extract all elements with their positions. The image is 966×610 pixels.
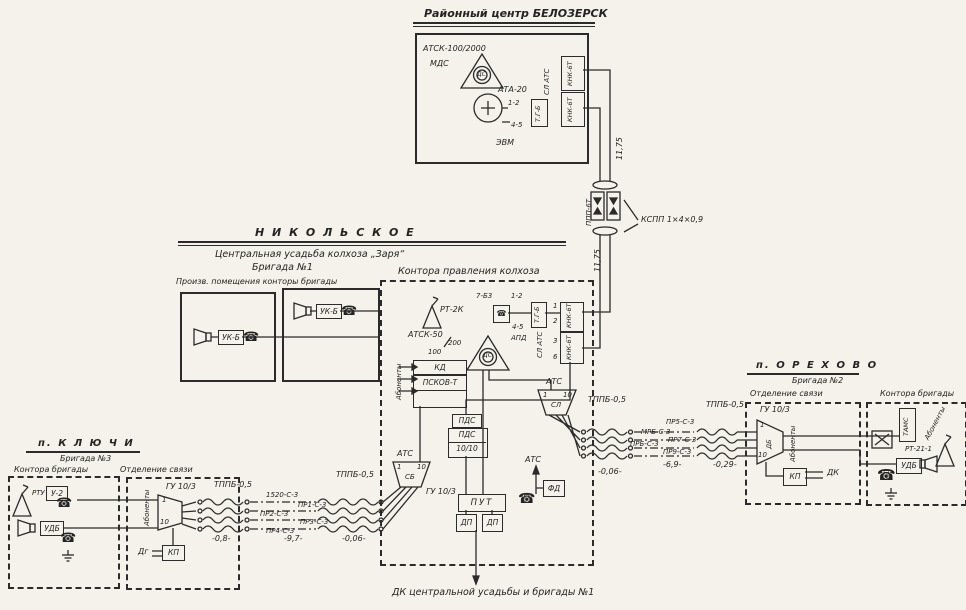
fd-box: ФД bbox=[543, 480, 565, 497]
trap-tick: 1 bbox=[543, 392, 547, 399]
nup-label: ППП-6Т bbox=[586, 199, 593, 226]
tgb-label: Т.Г-Б bbox=[534, 307, 541, 323]
cable-label: ТППБ-0,5 bbox=[706, 401, 744, 409]
atsk100-label: АТСК-100/2000 bbox=[423, 45, 486, 53]
trunk-length-label: 11,75 bbox=[616, 137, 624, 160]
pds-capacity-row: 10/10 bbox=[448, 442, 486, 456]
ats-mid-label: АТС bbox=[525, 456, 541, 464]
udb-box: УДБ bbox=[896, 458, 922, 474]
uk-box: УК-Б bbox=[218, 330, 244, 345]
down-arrow-icon bbox=[473, 576, 479, 584]
ats-left-label: АТС bbox=[397, 450, 413, 458]
wire-label: МРБ-С-3 bbox=[641, 429, 670, 436]
header-underline bbox=[178, 245, 566, 246]
office-caption: Контора бригады bbox=[14, 466, 88, 474]
trap-tick: 10 bbox=[758, 452, 767, 459]
phone-icon: ☎ bbox=[243, 331, 259, 344]
distance-label: -0,06- bbox=[342, 535, 366, 543]
t7b3-label: 7-Б3 bbox=[476, 293, 492, 300]
ats-right-label: АТС bbox=[546, 378, 562, 386]
evm-label: ЭВМ bbox=[496, 139, 514, 147]
trap-tick: 1 bbox=[760, 422, 764, 429]
post-caption: Отделение связи bbox=[750, 390, 823, 398]
tgb-label: Т.Г-Б bbox=[535, 106, 542, 122]
n100-label: 100 bbox=[428, 349, 441, 356]
abonenty-label: Абоненты bbox=[144, 490, 151, 526]
prod-building-box bbox=[282, 288, 380, 382]
title-underline bbox=[413, 26, 595, 27]
wire-label: ПР3-С-3 bbox=[300, 519, 328, 526]
distance-label: -6,9- bbox=[663, 461, 682, 469]
tick-label: 2 bbox=[553, 318, 557, 325]
nikolskoye-header: Н И К О Л Ь С К О Е bbox=[255, 227, 416, 239]
tick-label: 1 bbox=[553, 303, 557, 310]
mds-label: МДС bbox=[430, 60, 449, 68]
gu-left-label: ГУ 10/3 bbox=[426, 488, 456, 496]
tick-label: 3 bbox=[553, 338, 557, 345]
cable-sleeve-icon bbox=[593, 181, 617, 189]
tower-label: ДС bbox=[477, 72, 486, 78]
trap-label: ДБ bbox=[766, 439, 773, 449]
gu-label: ГУ 10/3 bbox=[166, 483, 196, 491]
pair-label: 1-2 bbox=[508, 100, 519, 107]
trap-tick: 10 bbox=[160, 519, 169, 526]
pair-label: 4-5 bbox=[511, 122, 522, 129]
trap-label: СЛ bbox=[551, 402, 561, 409]
orekhovo-header: п. О Р Е Х О В О bbox=[756, 361, 878, 372]
header-underline bbox=[178, 241, 566, 243]
distance-label: -9,7- bbox=[284, 535, 303, 543]
footer-caption: ДК центральной усадьбы и бригады №1 bbox=[392, 588, 594, 598]
pair-label: 4-5 bbox=[512, 324, 523, 331]
brigade3-label: Бригада №3 bbox=[60, 455, 111, 463]
put-box: ПУТ bbox=[458, 494, 506, 512]
trap-tick: 10 bbox=[417, 464, 426, 471]
wire-label: ПР9-С-3 bbox=[663, 449, 691, 456]
trunk-length-label: 11,75 bbox=[594, 249, 602, 272]
cable-label: ТППБ-0,5 bbox=[336, 471, 374, 479]
wire-label: ПР1-С-3 bbox=[298, 502, 326, 509]
phone-icon: ☎ bbox=[341, 305, 357, 318]
trap-tick: 1 bbox=[397, 464, 401, 471]
pskov-box: ПСКОВ-Т bbox=[413, 374, 467, 391]
belozersk-title: Районный центр БЕЛОЗЕРСК bbox=[424, 8, 608, 20]
knk-label: КНК-6Т bbox=[567, 97, 574, 122]
kolkhoz-label: Центральная усадьба колхоза „Заря“ bbox=[215, 250, 404, 260]
kp-box: КП bbox=[783, 468, 807, 486]
dg-label: Дг bbox=[138, 548, 148, 556]
knk-label: КНК-6Т bbox=[566, 303, 573, 328]
knk-label: КНК-6Т bbox=[566, 335, 573, 360]
wire-label: ПР2-С-3 bbox=[260, 511, 288, 518]
klyuchi-header: п. К Л Ю Ч И bbox=[38, 439, 135, 450]
trap-tick: 10 bbox=[563, 392, 572, 399]
header-underline bbox=[26, 451, 140, 453]
pds-row: ПДС bbox=[448, 428, 486, 443]
ata20-label: АТА-20 bbox=[498, 86, 527, 94]
rtu-label: РТУ bbox=[32, 490, 45, 497]
sl-ats-label: СЛ АТС bbox=[544, 69, 551, 95]
distance-label: -0,29- bbox=[713, 461, 737, 469]
nup-repeater-icon bbox=[607, 192, 620, 220]
scanned-diagram-canvas: Районный центр БЕЛОЗЕРСК АТСК-100/2000 М… bbox=[0, 0, 966, 610]
pds-box: ПДС bbox=[452, 414, 482, 428]
dp-box: ДП bbox=[482, 514, 503, 532]
phone-icon: ☎ bbox=[877, 468, 896, 483]
distance-label: -0,06- bbox=[598, 468, 622, 476]
abonenty-label: Абоненты bbox=[790, 426, 797, 462]
office-caption: Контора бригады bbox=[880, 390, 954, 398]
wire-label: 1520-С-3 bbox=[266, 492, 298, 499]
prod-caption: Произв. помещения конторы бригады bbox=[176, 278, 337, 286]
tick-label: 6 bbox=[553, 354, 557, 361]
office-caption: Контора правления колхоза bbox=[398, 267, 540, 277]
trap-label: СБ bbox=[405, 474, 415, 481]
trap-tick: 1 bbox=[162, 497, 166, 504]
tower-label: ДС bbox=[483, 353, 492, 359]
cable-label: ТППБ-0,5 bbox=[588, 396, 626, 404]
sl-ats-label: СЛ АТС bbox=[537, 332, 544, 358]
cable-callout-line bbox=[624, 200, 638, 232]
rt21-label: РТ-21-1 bbox=[905, 446, 932, 453]
cable-type-label: КСПП 1×4×0,9 bbox=[641, 216, 703, 224]
title-underline bbox=[413, 22, 595, 24]
orekhovo-office-box bbox=[866, 402, 966, 506]
brigade1-label: Бригада №1 bbox=[252, 263, 313, 273]
post-caption: Отделение связи bbox=[120, 466, 193, 474]
phone-icon: ☎ bbox=[497, 310, 507, 318]
uk-box: УК-Б bbox=[316, 304, 342, 319]
dk-label: ДК bbox=[827, 469, 839, 477]
rt2k-label: РТ-2К bbox=[440, 306, 463, 314]
atsk50-capacity: 200 bbox=[448, 340, 461, 347]
abonenty-label: Абоненты bbox=[396, 364, 403, 400]
kp-box: КП bbox=[162, 545, 185, 561]
cable-sleeve-icon bbox=[593, 227, 617, 235]
brigade2-label: Бригада №2 bbox=[792, 377, 843, 385]
phone-icon: ☎ bbox=[56, 497, 72, 510]
phone-icon: ☎ bbox=[60, 532, 76, 545]
header-underline bbox=[747, 373, 859, 375]
phone-icon: ☎ bbox=[518, 492, 535, 506]
pair-label: 1-2 bbox=[511, 293, 522, 300]
wire-label: ПРБ-С-3 bbox=[630, 441, 659, 448]
atsk50-label: АТСК-50 bbox=[408, 331, 443, 339]
wire-label: ПР5-С-3 bbox=[666, 419, 694, 426]
apd-label: АПД bbox=[511, 335, 527, 342]
gu-label: ГУ 10/3 bbox=[760, 406, 790, 414]
dp-box: ДП bbox=[456, 514, 477, 532]
knk-label: КНК-6Т bbox=[567, 61, 574, 86]
phone-box: ☎ bbox=[493, 305, 510, 323]
tams-label: ТАМС bbox=[903, 417, 910, 436]
wire-label: ПР7-С-3 bbox=[668, 437, 696, 444]
